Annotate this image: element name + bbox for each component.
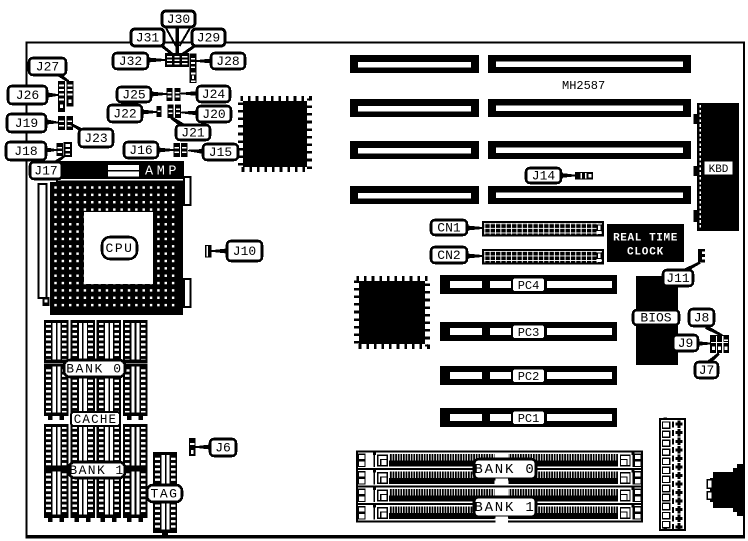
svg-text:BIOS: BIOS: [640, 311, 671, 326]
svg-text:J28: J28: [216, 54, 239, 69]
svg-text:J9: J9: [678, 336, 694, 351]
svg-text:PC1: PC1: [518, 412, 540, 426]
svg-text:J17: J17: [34, 164, 57, 179]
svg-text:CPU: CPU: [106, 241, 134, 256]
svg-text:BANK 1: BANK 1: [69, 463, 124, 478]
svg-text:CLOCK: CLOCK: [627, 247, 664, 259]
svg-text:BANK 0: BANK 0: [66, 362, 122, 377]
svg-text:CN2: CN2: [437, 248, 460, 263]
svg-text:PC4: PC4: [518, 279, 540, 293]
svg-text:BANK 1: BANK 1: [474, 500, 535, 516]
svg-text:J24: J24: [202, 87, 226, 102]
svg-text:J11: J11: [666, 271, 690, 286]
svg-text:J6: J6: [215, 441, 231, 456]
svg-text:J16: J16: [129, 143, 152, 158]
svg-text:J26: J26: [16, 88, 39, 103]
svg-text:REAL TIME: REAL TIME: [613, 233, 678, 245]
svg-text:MH2587: MH2587: [562, 79, 605, 93]
svg-text:J25: J25: [122, 88, 145, 103]
svg-text:J14: J14: [532, 169, 556, 184]
svg-text:PC3: PC3: [518, 326, 540, 340]
svg-text:AMP: AMP: [145, 165, 180, 180]
svg-text:TAG: TAG: [151, 487, 179, 502]
svg-text:J21: J21: [181, 126, 205, 141]
svg-text:J31: J31: [136, 31, 160, 46]
svg-text:J15: J15: [209, 145, 232, 160]
svg-text:PC2: PC2: [518, 370, 540, 384]
svg-text:J30: J30: [167, 12, 190, 27]
svg-text:J22: J22: [113, 107, 136, 122]
svg-text:J8: J8: [694, 311, 710, 326]
svg-text:J19: J19: [15, 116, 38, 131]
svg-text:J7: J7: [699, 363, 715, 378]
svg-text:CACHE: CACHE: [74, 413, 118, 427]
svg-text:J29: J29: [197, 31, 220, 46]
svg-text:J18: J18: [14, 144, 37, 159]
svg-text:J20: J20: [202, 107, 225, 122]
svg-text:CN1: CN1: [437, 221, 461, 236]
svg-text:KBD: KBD: [709, 164, 729, 176]
svg-text:J10: J10: [233, 244, 256, 259]
svg-text:J32: J32: [119, 54, 142, 69]
svg-text:J23: J23: [84, 131, 107, 146]
svg-text:BANK 0: BANK 0: [474, 462, 535, 478]
svg-text:J27: J27: [36, 60, 59, 75]
